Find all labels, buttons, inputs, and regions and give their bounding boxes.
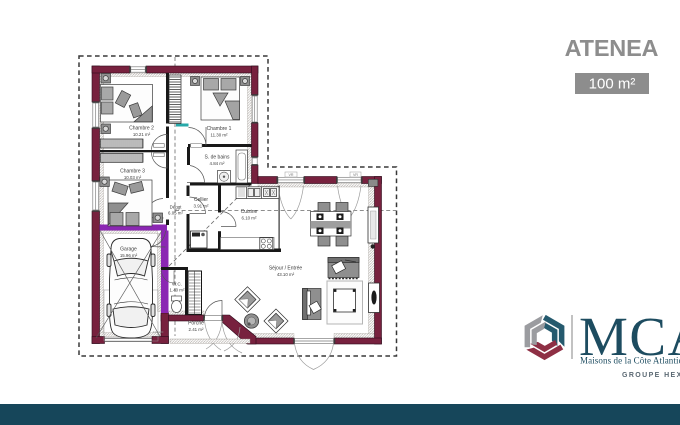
- svg-text:15.96 m²: 15.96 m²: [120, 253, 138, 258]
- svg-text:VR: VR: [353, 173, 358, 177]
- svg-text:Porche: Porche: [188, 321, 204, 327]
- svg-text:11.30 m²: 11.30 m²: [210, 133, 228, 138]
- svg-text:10.03 m²: 10.03 m²: [124, 175, 142, 180]
- svg-text:Garage: Garage: [120, 247, 137, 253]
- svg-text:43.10 m²: 43.10 m²: [277, 272, 295, 277]
- svg-text:6.10 m²: 6.10 m²: [242, 216, 257, 221]
- svg-text:Cuisine: Cuisine: [241, 209, 258, 215]
- svg-text:1.40 m²: 1.40 m²: [170, 288, 185, 293]
- svg-text:Chambre 2: Chambre 2: [129, 126, 154, 132]
- svg-text:VR: VR: [289, 173, 294, 177]
- svg-text:Séjour / Entrée: Séjour / Entrée: [269, 266, 303, 272]
- svg-text:Chambre 1: Chambre 1: [207, 126, 232, 132]
- svg-text:GROUPE HEXAOM: GROUPE HEXAOM: [622, 372, 680, 379]
- svg-text:6.05 m²: 6.05 m²: [168, 211, 183, 216]
- svg-text:10.21 m²: 10.21 m²: [133, 132, 151, 137]
- svg-text:Chambre 3: Chambre 3: [120, 169, 145, 175]
- svg-text:W.C.: W.C.: [172, 282, 182, 287]
- svg-text:Maisons de la Côte Atlantique: Maisons de la Côte Atlantique: [580, 356, 680, 366]
- svg-text:S. de bains: S. de bains: [204, 155, 230, 161]
- svg-text:Cellier: Cellier: [194, 197, 209, 203]
- svg-text:Déggt: Déggt: [170, 205, 182, 210]
- svg-text:ATENEA: ATENEA: [565, 35, 659, 61]
- svg-text:4.84 m²: 4.84 m²: [210, 161, 225, 166]
- svg-text:100 m²: 100 m²: [589, 76, 636, 93]
- svg-text:3.91 m²: 3.91 m²: [194, 204, 209, 209]
- svg-text:2.41 m²: 2.41 m²: [189, 327, 204, 332]
